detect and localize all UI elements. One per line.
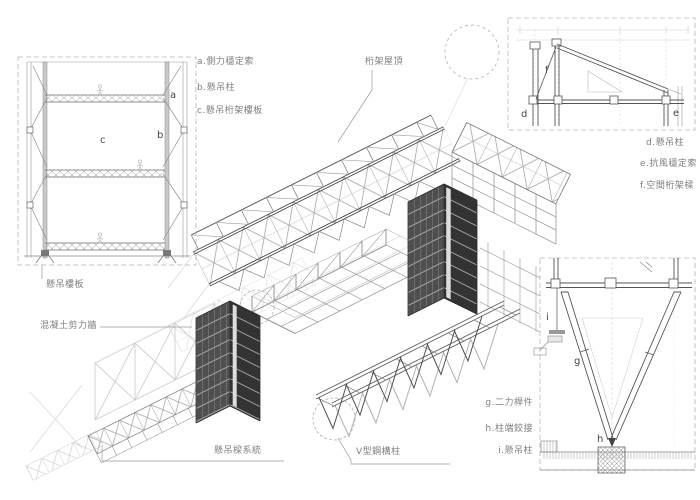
detail2-letter-d: d xyxy=(521,109,527,120)
detail2-letter-e: e xyxy=(673,108,679,119)
detail3-roof-mark xyxy=(640,262,652,272)
detail1-letter-a: a xyxy=(170,90,176,101)
roof-detail-circle xyxy=(445,25,499,79)
right-lattice-panel xyxy=(452,122,571,203)
v-column-row xyxy=(313,301,520,440)
label-v-steel-column: V型鋼構柱 xyxy=(356,447,401,458)
detail1-base-right xyxy=(163,250,171,256)
legend-item-d: d.懸吊柱 xyxy=(646,138,684,149)
detail3-letter-h: h xyxy=(597,434,603,445)
detail3-letter-i: i xyxy=(546,312,549,323)
detail3-splice-marks xyxy=(580,349,654,355)
legend-item-a: a.側力穩定索 xyxy=(197,57,254,68)
detail1-base-left xyxy=(41,250,49,256)
detail1-letter-b: b xyxy=(157,130,163,141)
scale-figures xyxy=(97,85,143,243)
legend-item-f: f.空間桁架樑 xyxy=(640,181,694,192)
detail1-cables xyxy=(30,66,184,240)
detail2-dim-lines xyxy=(516,30,690,40)
legend-item-c: c.懸吊桁架樓板 xyxy=(197,106,263,117)
detail1-slab3 xyxy=(45,243,165,250)
legend-item-b: b.懸吊柱 xyxy=(197,83,235,94)
label-suspended-floor-slab: 懸吊樓板 xyxy=(46,280,84,291)
detail2-wall-right xyxy=(668,86,682,126)
diagram-canvas: a b c d e f xyxy=(0,0,700,500)
detail-v-column: i g h xyxy=(534,258,695,473)
detail2-cap-left xyxy=(530,42,540,49)
detail2-column-left xyxy=(533,48,538,126)
detail1-walls xyxy=(27,62,187,258)
tower1-slot xyxy=(446,187,450,299)
tower1-left-windows xyxy=(408,184,444,316)
legend-item-e: e.抗風穩定索 xyxy=(640,159,697,170)
detail1-letter-c: c xyxy=(100,135,106,146)
detail-roof-truss-section: d e f xyxy=(508,18,695,130)
detail2-border xyxy=(508,18,695,130)
detail2-letter-f: f xyxy=(545,65,549,76)
tower2-left-windows xyxy=(196,301,230,423)
v-column-detail-circle xyxy=(313,398,355,440)
v-row-beams xyxy=(316,301,520,407)
detail2-slope-triangle xyxy=(588,71,622,92)
leader-roof-truss xyxy=(338,70,372,142)
detail1-slab2 xyxy=(45,170,165,177)
detail2-top-chord xyxy=(557,44,668,93)
detail3-letter-g: g xyxy=(574,356,580,367)
legend-item-g: g.二力桿件 xyxy=(485,398,533,409)
detail2-bottom-chord xyxy=(530,100,684,104)
detail3-foundation xyxy=(598,447,625,473)
detail3-border xyxy=(540,258,695,470)
legend-item-i: i.懸吊柱 xyxy=(498,446,533,457)
label-concrete-shear-wall: 混凝土剪力牆 xyxy=(40,321,97,332)
detail3-left-block xyxy=(541,441,557,452)
detail3-pin-apex xyxy=(608,438,616,447)
label-suspended-beam-system: 懸吊樑系統 xyxy=(214,446,262,457)
structural-axonometric-svg: a b c d e f xyxy=(0,0,700,500)
detail-suspended-floors: a b c xyxy=(18,57,196,265)
tower2-slot xyxy=(233,304,237,407)
detail3-hanger-arm xyxy=(540,342,548,350)
label-roof-truss: 桁架屋頂 xyxy=(365,57,403,68)
legend-item-h: h.柱端鉸接 xyxy=(485,424,533,435)
detail2-column-inner xyxy=(555,46,559,126)
detail3-hanger-plate xyxy=(549,330,565,334)
detail1-slab1 xyxy=(45,95,165,102)
roof-detail-link xyxy=(445,78,468,126)
v-row-ties xyxy=(318,307,516,406)
shear-wall-tower-lower xyxy=(196,301,260,423)
shear-wall-tower-upper xyxy=(408,184,477,316)
detail3-hanger-bracket xyxy=(548,336,562,342)
left-lattice-faint xyxy=(26,431,103,480)
detail1-base-struts xyxy=(36,256,176,263)
